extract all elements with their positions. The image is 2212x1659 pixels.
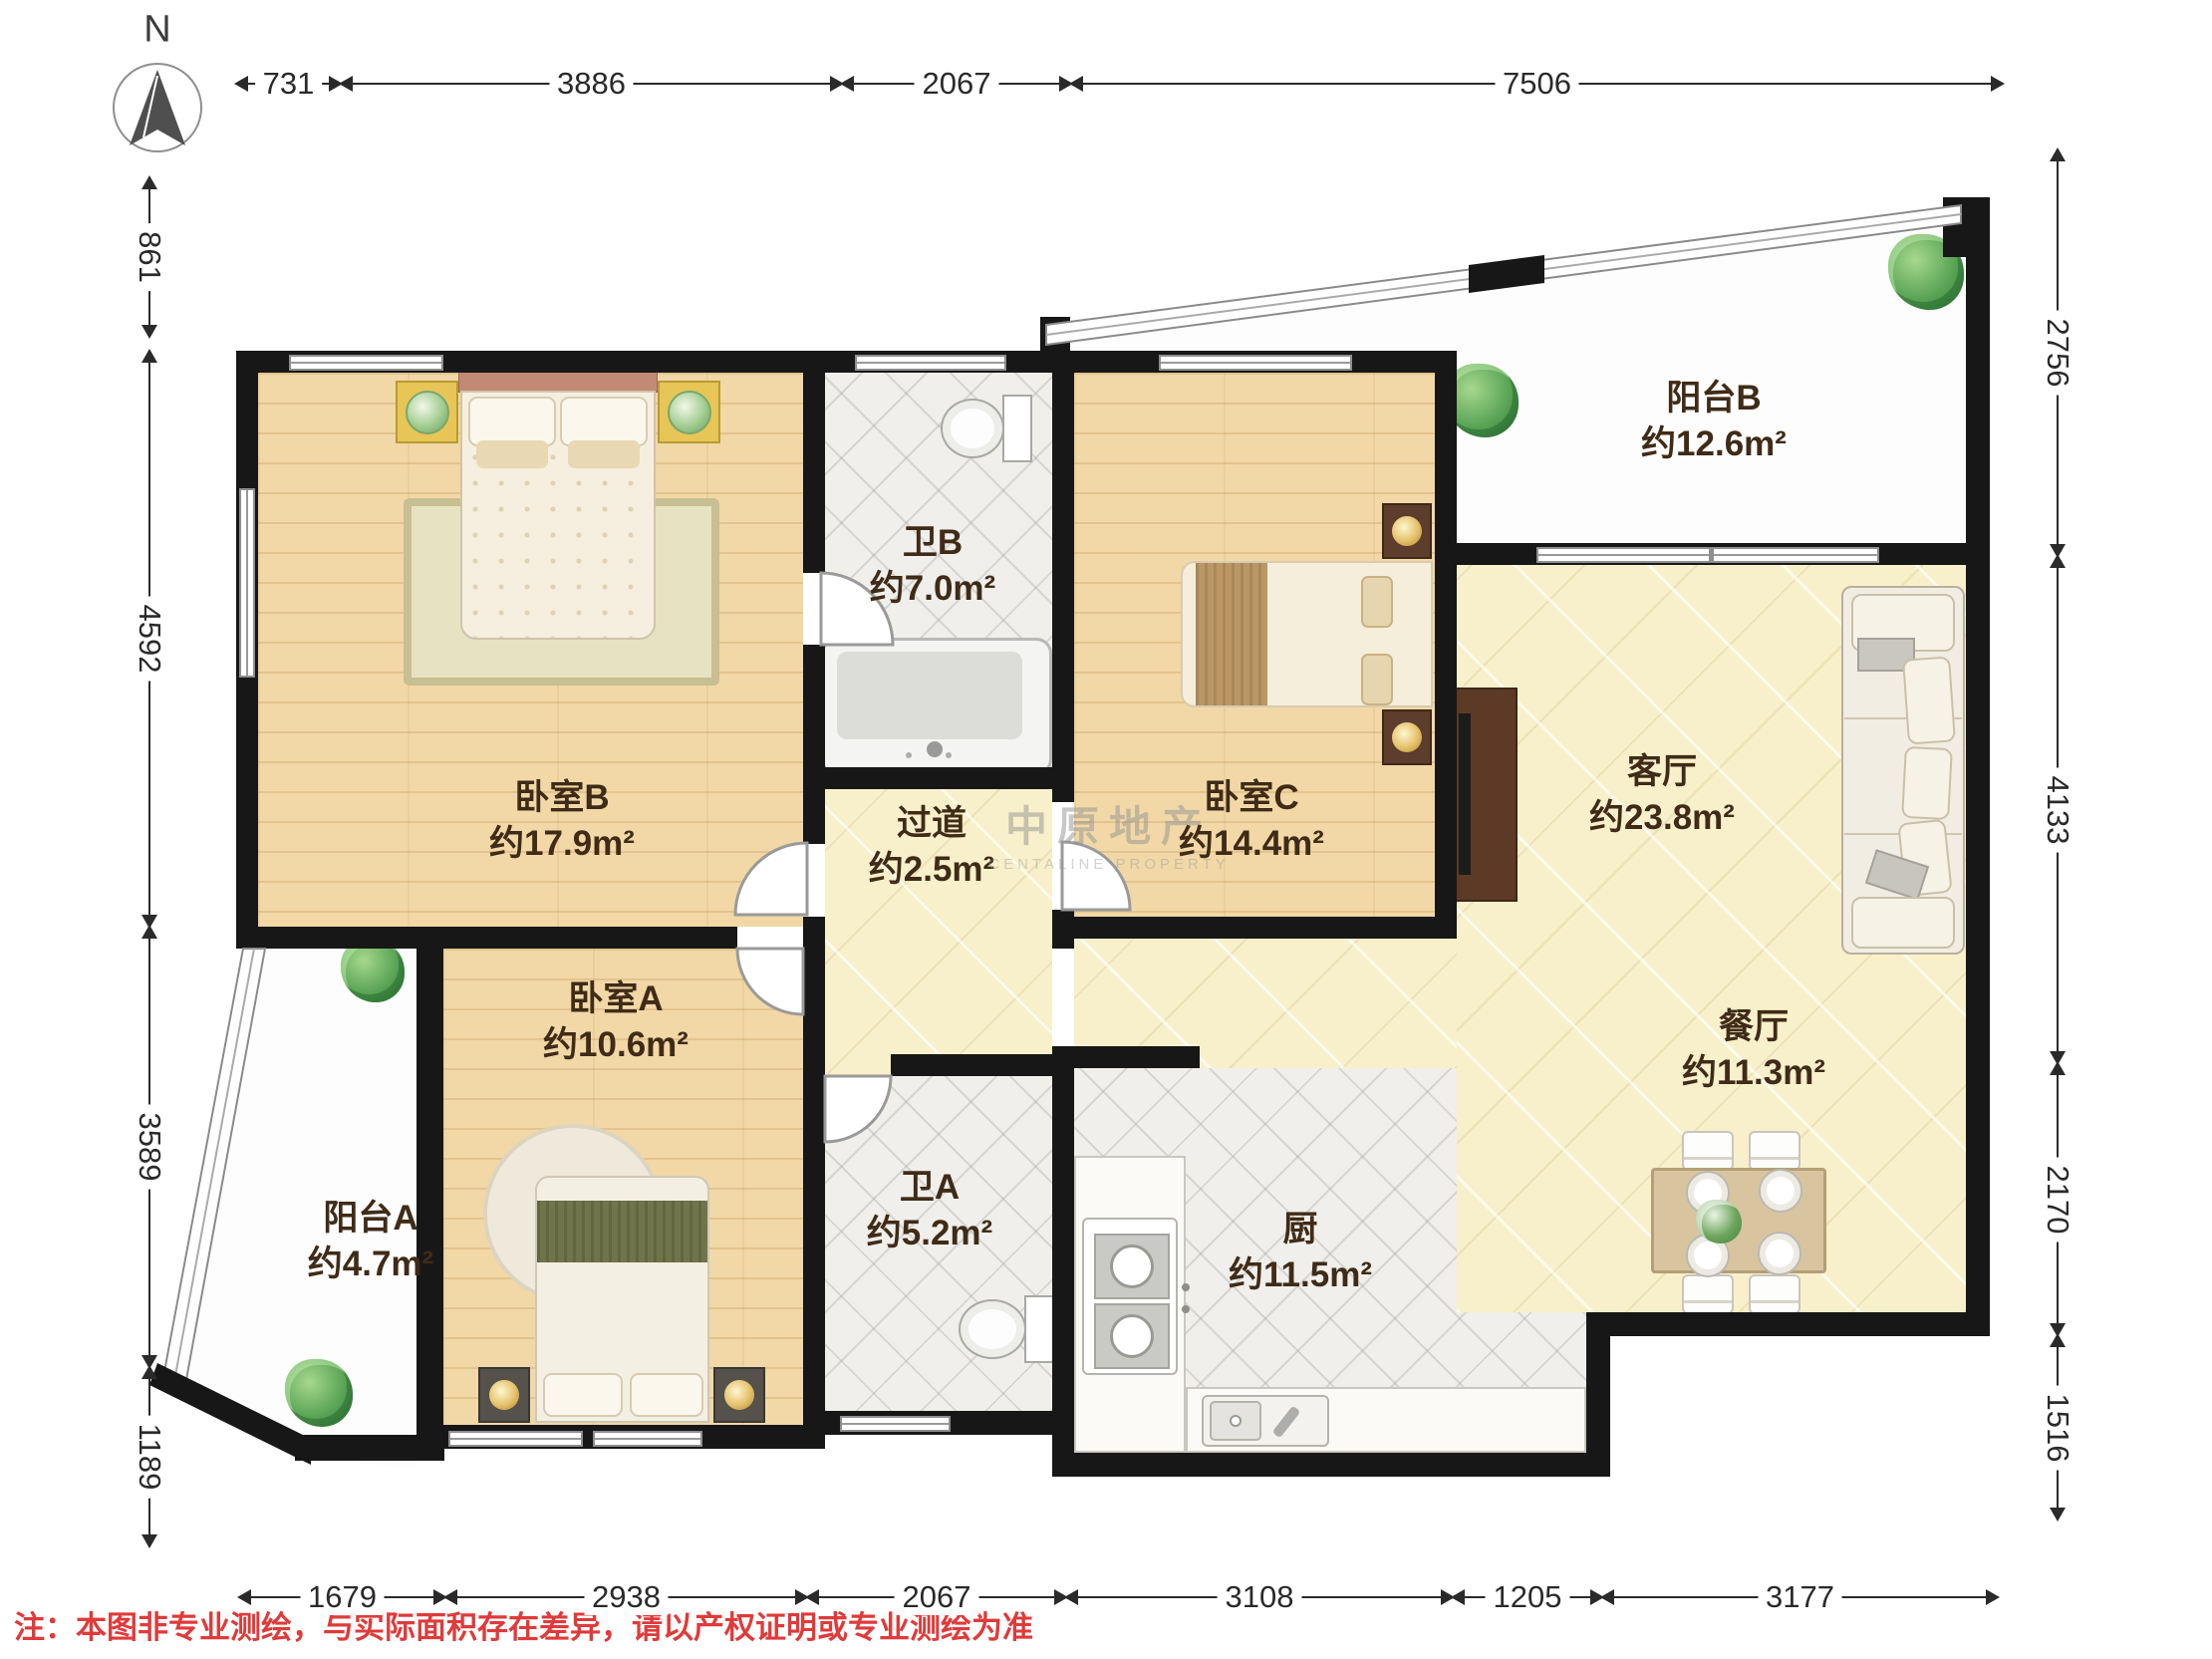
dimension-value: 3177 [1758, 1579, 1842, 1615]
dimension-value: 2170 [2040, 1157, 2075, 1242]
dimension-value: 731 [255, 66, 323, 102]
dimension-value: 1516 [2040, 1385, 2075, 1470]
dimension-bottom-2067: 2067 [807, 1596, 1066, 1598]
dimension-value: 2067 [915, 66, 999, 102]
dimension-value: 4133 [2040, 767, 2075, 852]
dimension-left-3589: 3589 [148, 927, 150, 1367]
dimension-bottom-3108: 3108 [1066, 1596, 1453, 1598]
dimension-value: 1205 [1486, 1579, 1570, 1615]
dimension-left-861: 861 [148, 177, 150, 337]
dimension-value: 7506 [1495, 66, 1579, 102]
dimension-bottom-3177: 3177 [1602, 1596, 1998, 1598]
dimension-top-2067: 2067 [842, 83, 1071, 85]
dimension-value: 4592 [132, 597, 167, 682]
floor-plan-page: { "compass": {"label": "N"}, "watermark"… [0, 0, 2212, 1659]
dimension-value: 2067 [895, 1579, 979, 1615]
dimension-bottom-1205: 1205 [1453, 1596, 1602, 1598]
dimension-top-7506: 7506 [1071, 83, 2003, 85]
dimension-top-3886: 3886 [341, 83, 842, 85]
dimension-bottom-2938: 2938 [445, 1596, 807, 1598]
dimension-value: 1189 [132, 1416, 167, 1499]
dimension-right-1516: 1516 [2057, 1335, 2059, 1520]
dimension-lines-layer: 7313886206775061679293820673108120531778… [0, 0, 2212, 1659]
dimension-value: 1679 [300, 1579, 385, 1615]
dimension-value: 861 [132, 223, 167, 291]
dimension-right-2170: 2170 [2057, 1063, 2059, 1335]
dimension-left-1189: 1189 [148, 1367, 150, 1546]
dimension-value: 2756 [2040, 311, 2075, 396]
dimension-value: 3589 [132, 1105, 167, 1190]
dimension-value: 2938 [584, 1579, 669, 1615]
dimension-right-2756: 2756 [2057, 149, 2059, 556]
dimension-bottom-1679: 1679 [239, 1596, 445, 1598]
dimension-top-731: 731 [236, 83, 341, 85]
dimension-left-4592: 4592 [148, 351, 150, 927]
dimension-value: 3886 [549, 66, 634, 102]
dimension-right-4133: 4133 [2057, 556, 2059, 1063]
dimension-value: 3108 [1218, 1579, 1302, 1615]
